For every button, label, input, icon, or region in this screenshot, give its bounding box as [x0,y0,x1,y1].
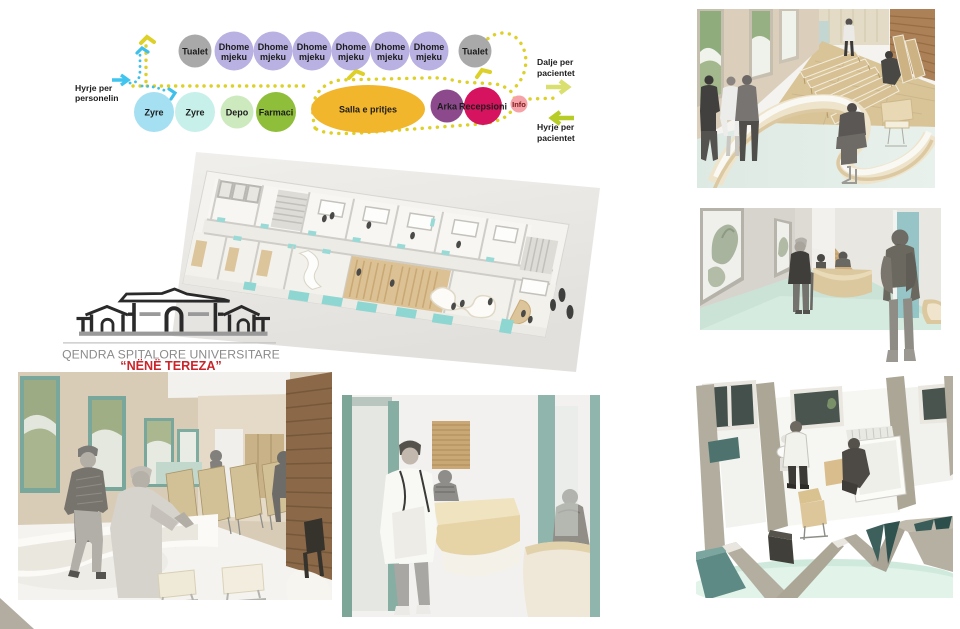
svg-text:mjeku: mjeku [260,52,286,62]
svg-text:Farmaci: Farmaci [259,108,294,118]
svg-text:Arka: Arka [437,102,458,112]
svg-text:Hyrje per: Hyrje per [75,83,113,93]
svg-text:Dhome: Dhome [375,42,406,52]
svg-text:Dhome: Dhome [297,42,328,52]
svg-text:Dhome: Dhome [219,42,250,52]
svg-text:mjeku: mjeku [221,52,247,62]
svg-text:Hyrje per: Hyrje per [537,122,575,132]
svg-text:Salla e pritjes: Salla e pritjes [339,105,397,115]
svg-text:Tualet: Tualet [462,47,488,57]
svg-text:Zyre: Zyre [144,108,163,118]
svg-text:“NËNË TEREZA”: “NËNË TEREZA” [120,358,221,373]
svg-text:mjeku: mjeku [299,52,325,62]
svg-text:Dhome: Dhome [336,42,367,52]
svg-text:mjeku: mjeku [377,52,403,62]
svg-text:mjeku: mjeku [338,52,364,62]
svg-text:pacientet: pacientet [537,68,575,78]
svg-text:Dalje per: Dalje per [537,57,574,67]
svg-text:mjeku: mjeku [416,52,442,62]
svg-text:Recepsioni: Recepsioni [459,102,507,112]
svg-text:pacientet: pacientet [537,133,575,143]
svg-text:Tualet: Tualet [182,47,208,57]
svg-text:Dhome: Dhome [414,42,445,52]
svg-text:Info: Info [512,100,526,109]
svg-text:Dhome: Dhome [258,42,289,52]
svg-text:personelin: personelin [75,93,118,103]
svg-text:Depo: Depo [226,108,249,118]
svg-text:Zyre: Zyre [185,108,204,118]
